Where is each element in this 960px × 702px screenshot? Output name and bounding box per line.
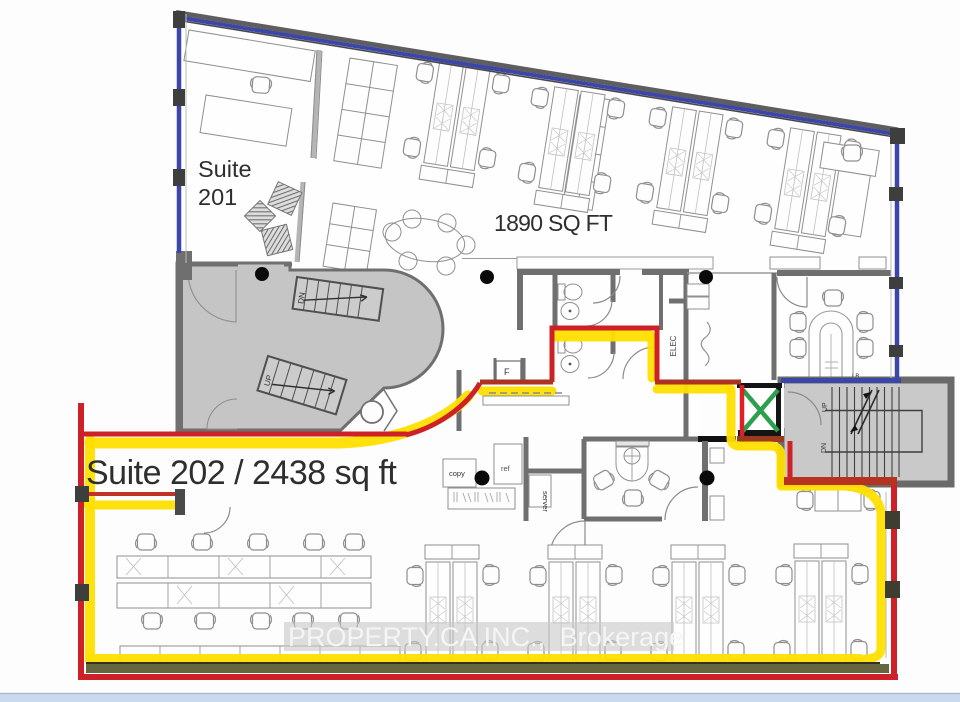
svg-text:copy: copy xyxy=(449,469,465,478)
svg-text:Suite: Suite xyxy=(198,156,252,182)
svg-text:1890 SQ FT: 1890 SQ FT xyxy=(494,210,613,236)
svg-text:UP: UP xyxy=(822,402,829,412)
svg-text:server: server xyxy=(541,491,550,512)
svg-text:ref: ref xyxy=(501,464,511,473)
svg-text:201: 201 xyxy=(198,184,237,210)
svg-text:F: F xyxy=(504,367,510,377)
svg-text:Suite 202 / 2438 sq ft: Suite 202 / 2438 sq ft xyxy=(86,454,397,492)
svg-text:DN: DN xyxy=(821,443,828,453)
svg-text:ELEC: ELEC xyxy=(669,335,678,356)
svg-text:PROPERTY.CA INC., Brokerage: PROPERTY.CA INC., Brokerage xyxy=(288,622,684,652)
svg-text:DN: DN xyxy=(296,292,307,305)
